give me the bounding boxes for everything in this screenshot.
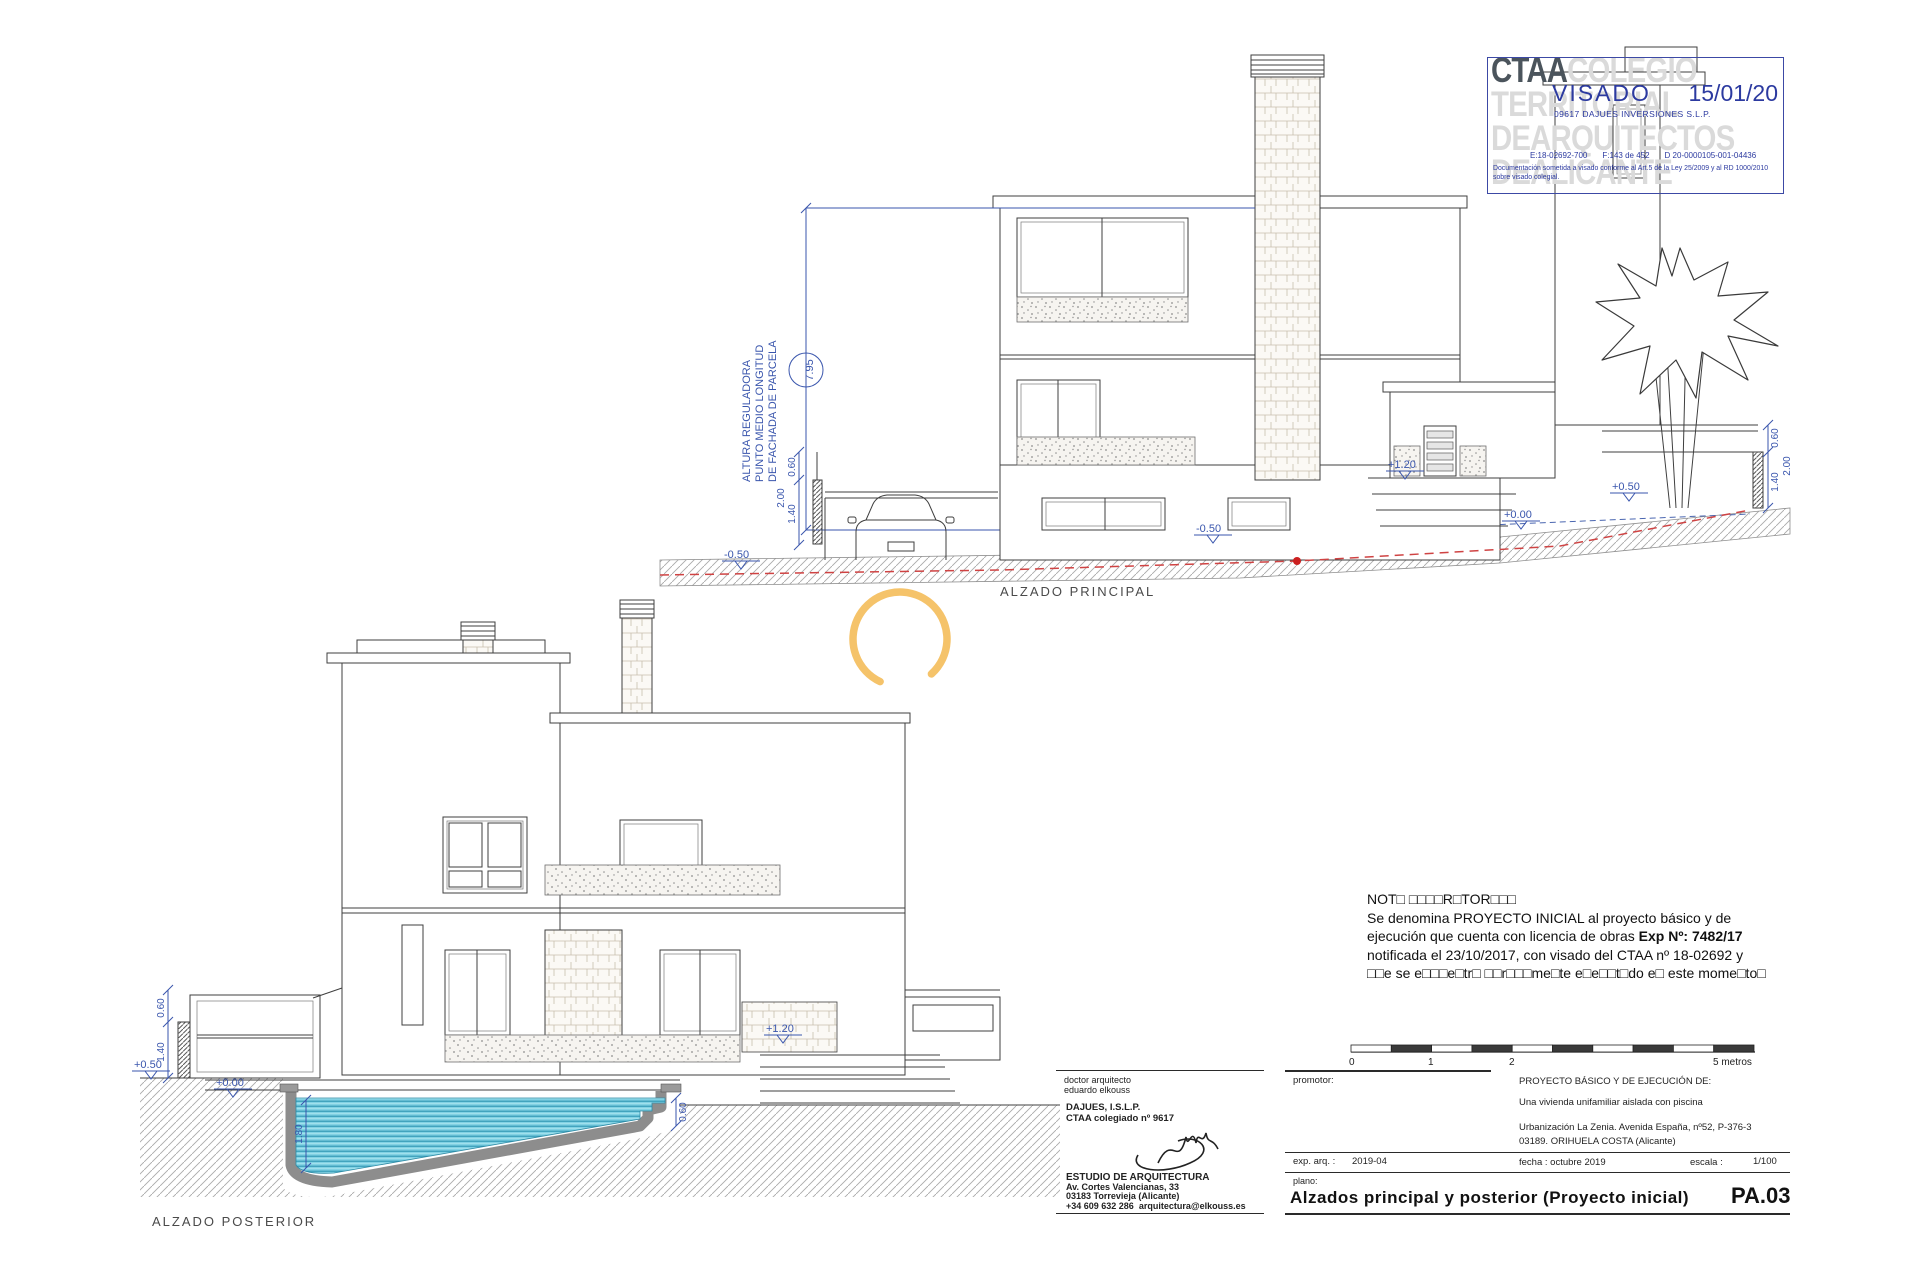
stamp-visado-label: VISADO (1552, 80, 1651, 107)
chimney-stone (1255, 55, 1320, 480)
architect-title: doctor arquitecto (1064, 1075, 1131, 1085)
svg-text:1.80: 1.80 (294, 1124, 305, 1144)
svg-text:+0.50: +0.50 (134, 1059, 162, 1071)
svg-text:2: 2 (1509, 1057, 1515, 1068)
svg-text:+0.00: +0.00 (1504, 509, 1532, 521)
plano-label: plano: (1293, 1176, 1318, 1186)
studio-email: arquitectura@elkouss.es (1139, 1201, 1246, 1211)
svg-text:-0.50: -0.50 (1196, 523, 1221, 535)
svg-text:+0.00: +0.00 (216, 1077, 244, 1089)
promotor-label: promotor: (1293, 1075, 1334, 1086)
svg-text:-0.50: -0.50 (724, 549, 749, 561)
firm-name: DAJUES, I.S.L.P. (1066, 1103, 1174, 1114)
architect-cell: doctor arquitecto eduardo elkouss DAJUES… (1056, 1070, 1264, 1214)
escala-value: 1/100 (1753, 1156, 1777, 1167)
studio-phone: +34 609 632 286 (1066, 1201, 1134, 1211)
stamp-date: 15/01/20 (1688, 80, 1778, 107)
stamp-references: E:18-02692-700F:143 de 452D 20-0000105-0… (1530, 151, 1756, 160)
left-boundary-wall (813, 452, 822, 544)
svg-text:+0.50: +0.50 (1612, 481, 1640, 493)
house-posterior (327, 600, 1000, 1103)
svg-text:2.00: 2.00 (1782, 456, 1793, 476)
titleblock-line (1285, 1152, 1790, 1153)
drawing-sheet: 7.95 ALTURA REGULADORA PUNTO MEDIO LONGI… (0, 0, 1920, 1280)
car-silhouette (848, 495, 954, 560)
project-heading: PROYECTO BÁSICO Y DE EJECUCIÓN DE: (1519, 1076, 1711, 1087)
svg-text:0.60: 0.60 (678, 1102, 689, 1122)
alzado-posterior-drawing: 1.80 0.60 0.60 1.40 +0.50 +0.00 +1.20 (120, 570, 1060, 1230)
titleblock-line (1285, 1213, 1790, 1215)
svg-text:+1.20: +1.20 (1388, 459, 1416, 471)
stamp-client: 09617 DAJUES INVERSIONES S.L.P. (1554, 109, 1711, 119)
project-address1: Urbanización La Zenia. Avenida España, n… (1519, 1122, 1752, 1133)
level-marker-p050: +0.50 (1610, 481, 1648, 501)
visado-stamp: CTAACOLEGIO TERRITORIAL DEARQUITECTOS DE… (1487, 57, 1784, 194)
regulator-caption: ALTURA REGULADORA PUNTO MEDIO LONGITUD D… (741, 340, 779, 482)
exp-arq-label: exp. arq. : (1293, 1156, 1335, 1167)
signature (1128, 1119, 1240, 1177)
svg-text:DE FACHADA DE PARCELA: DE FACHADA DE PARCELA (767, 340, 779, 482)
escala-label: escala : (1690, 1157, 1723, 1168)
left-wall-dims: 0.60 1.40 2.00 (776, 447, 804, 550)
svg-text:ALTURA REGULADORA: ALTURA REGULADORA (741, 359, 753, 482)
terrain-reference-dot (1293, 557, 1301, 565)
nota-aclaratoria: NOT□ □□□□R□TOR□□□ Se denomina PROYECTO I… (1367, 890, 1797, 983)
right-fence-dims: 0.60 1.40 2.00 (1763, 420, 1793, 513)
titleblock-line (1285, 1172, 1790, 1173)
stamp-legal-text: Documentación sometida a visado conforme… (1493, 165, 1779, 183)
exp-arq-value: 2019-04 (1352, 1156, 1387, 1167)
svg-text:0: 0 (1349, 1057, 1355, 1068)
svg-text:0.60: 0.60 (1770, 428, 1781, 448)
svg-text:PUNTO MEDIO LONGITUD: PUNTO MEDIO LONGITUD (754, 345, 766, 482)
project-address2: 03189. ORIHUELA COSTA (Alicante) (1519, 1136, 1676, 1147)
svg-text:1.40: 1.40 (787, 504, 798, 524)
svg-text:5 metros: 5 metros (1713, 1057, 1752, 1068)
retaining-glass-box (178, 988, 342, 1078)
svg-text:2.00: 2.00 (776, 488, 787, 508)
svg-text:0.60: 0.60 (787, 457, 798, 477)
svg-text:1: 1 (1428, 1057, 1434, 1068)
titleblock-line (1285, 1070, 1491, 1072)
architect-name: eduardo elkouss (1064, 1085, 1131, 1095)
sheet-code: PA.03 (1731, 1183, 1791, 1209)
svg-text:0.60: 0.60 (156, 998, 167, 1018)
project-description: Una vivienda unifamiliar aislada con pis… (1519, 1097, 1703, 1108)
fecha-label: fecha : octubre 2019 (1519, 1157, 1606, 1168)
alzado-posterior-label: ALZADO POSTERIOR (152, 1214, 316, 1229)
svg-text:7.95: 7.95 (804, 359, 816, 380)
sheet-title: Alzados principal y posterior (Proyecto … (1290, 1188, 1689, 1208)
svg-text:+1.20: +1.20 (766, 1023, 794, 1035)
svg-text:1.40: 1.40 (1770, 472, 1781, 492)
scale-bar: 0 1 2 5 metros (1348, 1034, 1762, 1068)
